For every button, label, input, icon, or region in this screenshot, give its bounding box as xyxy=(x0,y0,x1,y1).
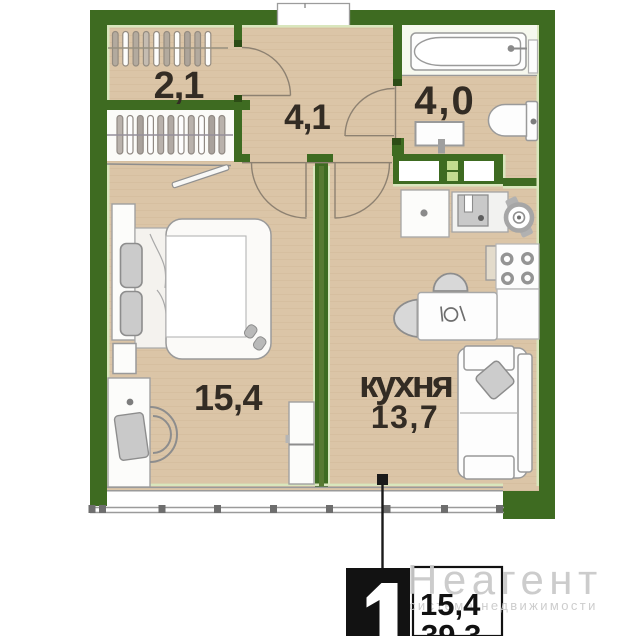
svg-text:2,1: 2,1 xyxy=(154,65,205,107)
svg-text:13,7: 13,7 xyxy=(371,399,439,435)
svg-text:39,3: 39,3 xyxy=(421,618,481,636)
svg-text:4,0: 4,0 xyxy=(414,79,476,123)
svg-text:15,4: 15,4 xyxy=(420,587,481,622)
svg-text:4,1: 4,1 xyxy=(284,98,330,137)
svg-text:15,4: 15,4 xyxy=(194,377,263,418)
